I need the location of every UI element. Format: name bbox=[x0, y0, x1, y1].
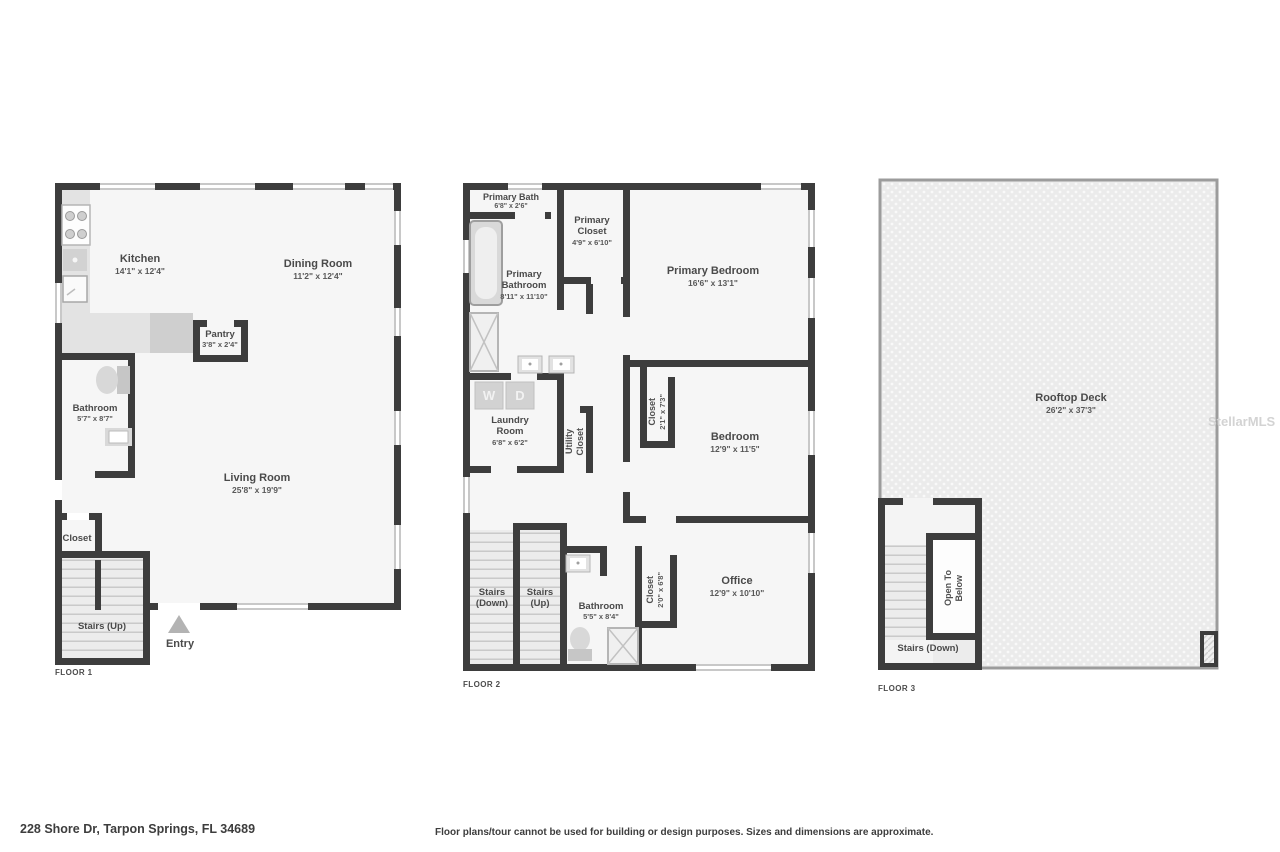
room-name: Utility bbox=[564, 429, 575, 454]
disclaimer-text: Floor plans/tour cannot be used for buil… bbox=[435, 827, 933, 838]
floor3-stair-opening bbox=[903, 498, 933, 505]
room-name: Closet bbox=[575, 428, 586, 456]
room-dims: 2'1" x 7'3" bbox=[658, 394, 668, 430]
room-label-office-closet: Closet 2'0" x 6'8" bbox=[644, 561, 666, 619]
toilet-icon bbox=[96, 366, 130, 394]
stairs-up-treads bbox=[62, 558, 143, 658]
bathroom-sink-icon bbox=[105, 428, 132, 446]
room-name: Closet bbox=[647, 398, 658, 426]
shower2-icon bbox=[608, 628, 638, 664]
floor2-plan: W D Primary Bath 6'8" x 2'6" Primary Clo… bbox=[463, 183, 815, 671]
floor1-walls-drawing bbox=[55, 183, 401, 665]
floor1-tag: FLOOR 1 bbox=[55, 668, 92, 677]
room-name: Closet bbox=[645, 576, 656, 604]
floor2-walls-drawing bbox=[463, 183, 815, 671]
bathtub-icon bbox=[470, 221, 502, 305]
room-name: Open To bbox=[943, 570, 954, 606]
room-name: Below bbox=[954, 575, 965, 602]
mls-watermark: StellarMLS bbox=[1208, 414, 1275, 429]
shower-icon bbox=[470, 313, 498, 371]
room-label-utility-closet: Utility Closet bbox=[564, 416, 586, 468]
stove-icon bbox=[62, 205, 90, 245]
deck-utility-box bbox=[1202, 633, 1216, 665]
property-address: 228 Shore Dr, Tarpon Springs, FL 34689 bbox=[20, 822, 255, 836]
kitchen-sink-icon bbox=[63, 249, 87, 302]
floor3-plan: Rooftop Deck 26'2" x 37'3" Open To Below… bbox=[878, 178, 1219, 670]
room-label-open-to-below: Open To Below bbox=[934, 548, 974, 628]
floor3-tag: FLOOR 3 bbox=[878, 684, 915, 693]
bathroom2-sink-icon bbox=[566, 555, 590, 572]
washer-letter: W bbox=[475, 382, 503, 409]
floor3-walls-drawing bbox=[878, 178, 1219, 670]
room-label-bedroom-closet: Closet 2'1" x 7'3" bbox=[647, 383, 668, 441]
dryer-letter: D bbox=[506, 382, 534, 409]
floor2-tag: FLOOR 2 bbox=[463, 680, 500, 689]
floorplan-page: { "floor1": { "label": "FLOOR 1", "kitch… bbox=[0, 0, 1280, 852]
floor1-plan: Kitchen 14'1" x 12'4" Dining Room 11'2" … bbox=[55, 183, 401, 665]
room-dims: 2'0" x 6'8" bbox=[656, 572, 666, 608]
